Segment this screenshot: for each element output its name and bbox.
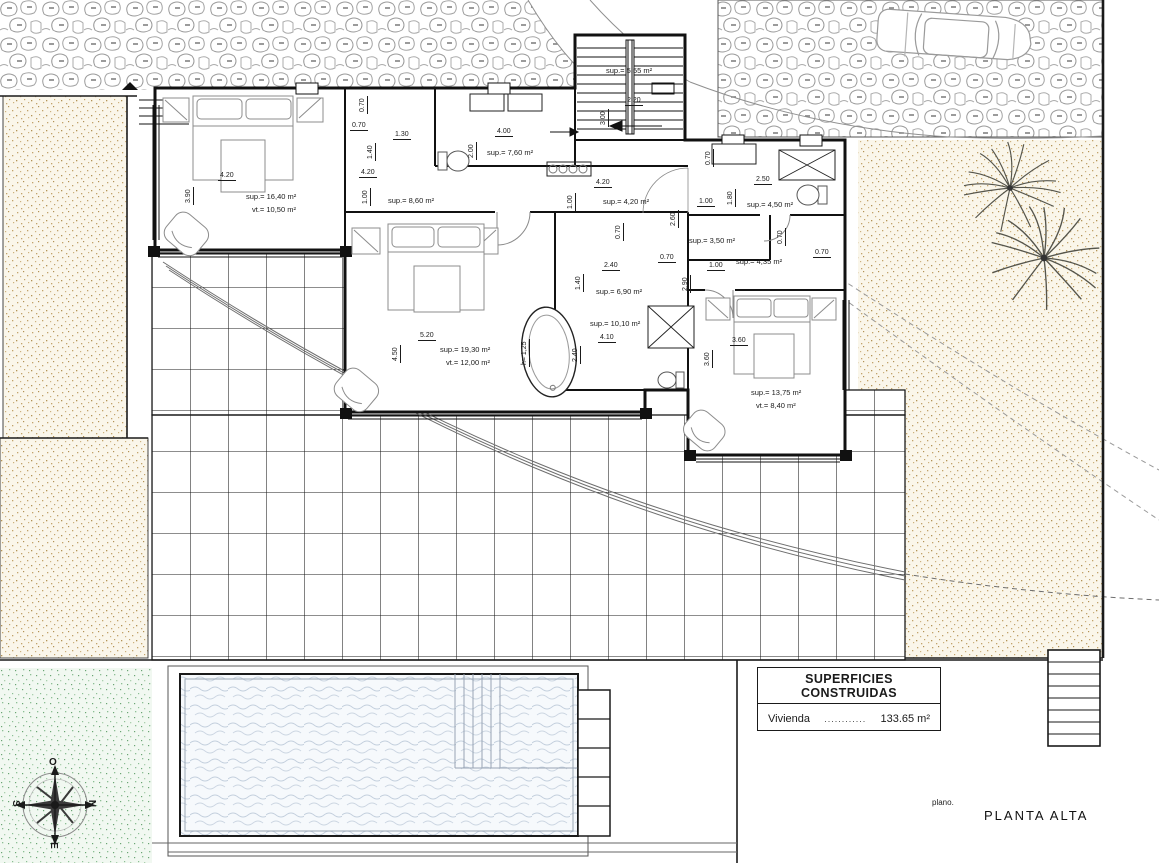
- row-value: 133.65 m²: [880, 713, 930, 725]
- built-surfaces-table: SUPERFICIES CONSTRUIDAS Vivienda .......…: [757, 667, 941, 731]
- dim-label: 2.20: [625, 97, 643, 106]
- dim-label: 5.20: [418, 332, 436, 341]
- dim-label: 1.00: [362, 188, 371, 206]
- room-label-closet-sup: sup.= 3,50 m²: [689, 236, 735, 245]
- table-header: SUPERFICIES CONSTRUIDAS: [758, 668, 940, 704]
- compass-letter-south: S: [10, 800, 21, 807]
- dim-label: 0.70: [777, 228, 786, 246]
- dim-label: 4.00: [495, 128, 513, 137]
- room-label-hall2-sup: sup.= 4,35 m²: [736, 257, 782, 266]
- dim-label: 2.90: [682, 275, 691, 293]
- room-label-stairs-sup: sup.= 5,55 m²: [606, 66, 652, 75]
- dim-label: 1.40: [367, 143, 376, 161]
- dim-label: 0.70: [658, 254, 676, 263]
- dim-label: 0.70: [705, 149, 714, 167]
- dim-label: 2.40: [572, 346, 581, 364]
- room-label-bedroom3-sup: sup.= 13,75 m²: [751, 388, 801, 397]
- dim-label: 4.20: [359, 169, 377, 178]
- plan-label-prefix: plano.: [932, 798, 954, 807]
- dim-label: 2.00: [468, 142, 477, 160]
- dim-label-tub-height: h= 1,25: [521, 339, 530, 367]
- dim-label: 3.60: [730, 337, 748, 346]
- room-label-hall-sup: sup.= 8,60 m²: [388, 196, 434, 205]
- dim-label: 1.00: [567, 193, 576, 211]
- lawn-area: [0, 668, 152, 863]
- table-row: Vivienda ............ 133.65 m²: [758, 704, 940, 725]
- swimming-pool: [152, 666, 737, 856]
- dim-label: 1.00: [707, 262, 725, 271]
- dim-label: 0.70: [615, 223, 624, 241]
- room-label-master-sup: sup.= 19,30 m²: [440, 345, 490, 354]
- room-label-master-vt: vt.= 12,00 m²: [446, 358, 490, 367]
- dim-label: 2.50: [754, 176, 772, 185]
- room-label-bedroom1-sup: sup.= 16,40 m²: [246, 192, 296, 201]
- room-label-bedroom3-vt: vt.= 8,40 m²: [756, 401, 796, 410]
- row-dots: ............: [810, 714, 880, 724]
- dim-label: 3.90: [185, 187, 194, 205]
- dim-label: 4.20: [594, 179, 612, 188]
- pool-steps: [578, 690, 610, 836]
- exterior-stairs: [1048, 650, 1100, 746]
- room-label-bath-mid-sup: sup.= 10,10 m²: [590, 319, 640, 328]
- dim-label: 0.70: [350, 122, 368, 131]
- row-label: Vivienda: [768, 713, 810, 725]
- dim-label: 2.60: [670, 210, 679, 228]
- dim-label: 1.30: [393, 131, 411, 140]
- dim-label: 1.80: [727, 189, 736, 207]
- room-label-dressing-sup: sup.= 6,90 m²: [596, 287, 642, 296]
- dim-label: 4.10: [598, 334, 616, 343]
- dim-label: 4.50: [392, 345, 401, 363]
- dim-label: 1.00: [697, 198, 715, 207]
- compass-letter-east: E: [48, 842, 59, 849]
- plan-name: PLANTA ALTA: [984, 808, 1088, 823]
- dim-label: 3.60: [704, 350, 713, 368]
- room-label-bath-top-sup: sup.= 7,60 m²: [487, 148, 533, 157]
- floor-plan-drawing: [0, 0, 1159, 863]
- floor-plan: sup.= 16,40 m² vt.= 10,50 m² sup.= 8,60 …: [0, 0, 1159, 863]
- dim-label: 1.40: [575, 274, 584, 292]
- dim-label: 4.20: [218, 172, 236, 181]
- room-label-landing-sup: sup.= 4,20 m²: [603, 197, 649, 206]
- dim-label: 0.70: [359, 96, 368, 114]
- dim-label: 0.70: [813, 249, 831, 258]
- room-label-bedroom1-vt: vt.= 10,50 m²: [252, 205, 296, 214]
- room-label-bath-right-sup: sup.= 4,50 m²: [747, 200, 793, 209]
- dim-label: 3.00: [600, 109, 609, 127]
- compass-letter-west: O: [49, 757, 57, 768]
- dim-label: 2.40: [602, 262, 620, 271]
- compass-letter-north: N: [86, 800, 97, 807]
